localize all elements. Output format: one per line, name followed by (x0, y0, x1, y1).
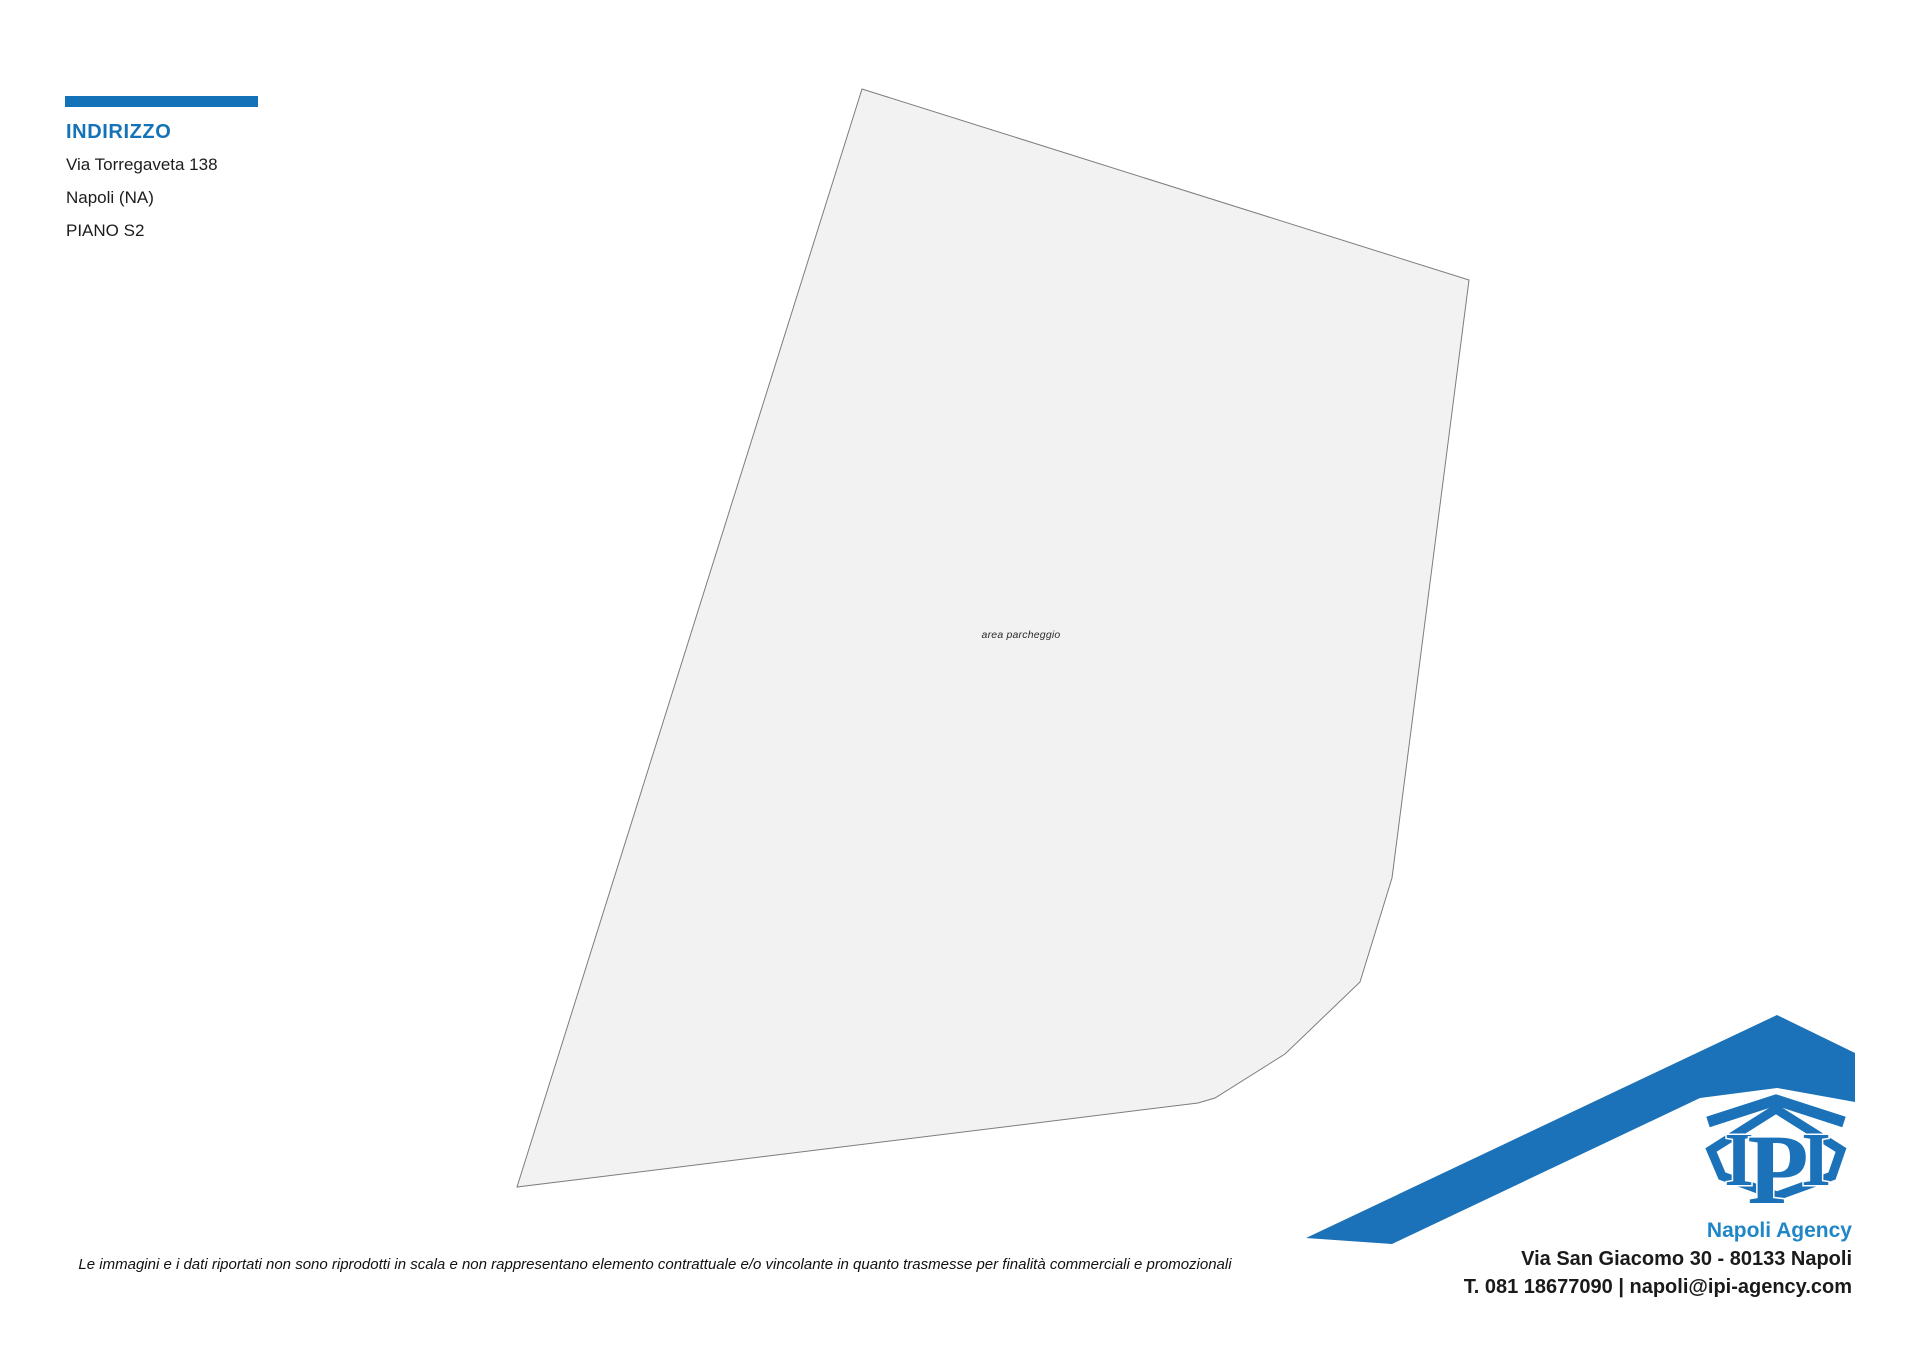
agency-address: Via San Giacomo 30 - 80133 Napoli (1521, 1248, 1852, 1271)
agency-logo-graphic: I I P (0, 0, 1920, 1357)
logo-letter-p: P (1747, 1114, 1808, 1225)
document-page: area parcheggio INDIRIZZO Via Torregavet… (0, 0, 1920, 1357)
agency-name: Napoli Agency (1707, 1219, 1852, 1243)
agency-contact: T. 081 18677090 | napoli@ipi-agency.com (1464, 1276, 1852, 1299)
